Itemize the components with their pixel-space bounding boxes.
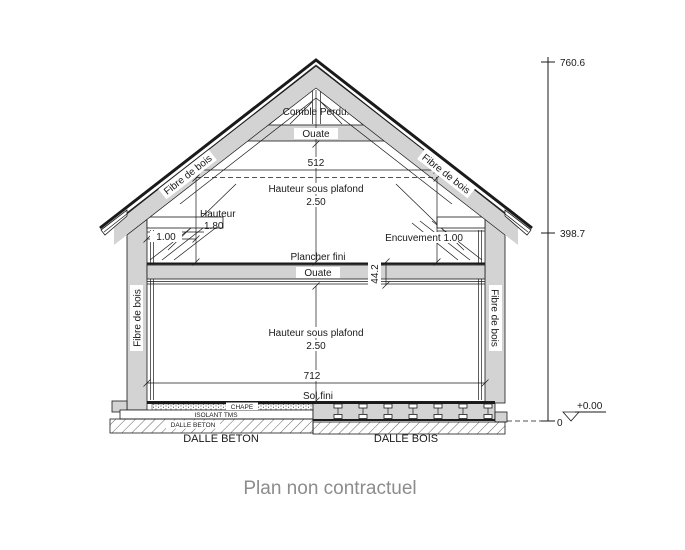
dalle-beton-title: DALLE BETON xyxy=(183,433,259,445)
right-knee-cap xyxy=(437,217,485,228)
elevation-zero-label: 0 xyxy=(557,418,563,429)
ouate-roof-label: Ouate xyxy=(302,129,330,140)
dim-442-label: 44.2 xyxy=(370,264,381,284)
dim-712-label: 712 xyxy=(304,371,321,382)
datum-triangle-icon xyxy=(563,412,579,421)
roof-insulation-right xyxy=(316,66,518,245)
ouate-floor-label: Ouate xyxy=(304,268,332,279)
dalle-beton-layer-label: DALLE BETON xyxy=(171,422,216,429)
knee-height-label: Hauteur xyxy=(200,209,236,220)
ground-slab xyxy=(110,403,507,435)
elevation-marks xyxy=(507,57,606,421)
section-svg: Comble Perdu. Ouate 512 Hauteur sous pla… xyxy=(0,0,685,550)
ground-ceiling-label: Hauteur sous plafond xyxy=(268,328,363,339)
upper-ceiling-value: 2.50 xyxy=(306,197,326,208)
ground-ceiling-value: 2.50 xyxy=(306,341,326,352)
sol-fini-label: Sol fini xyxy=(303,391,333,402)
dim-512-label: 512 xyxy=(308,158,325,169)
knee-height-value: 1.80 xyxy=(204,221,224,232)
chape-label: CHAPE xyxy=(231,404,254,411)
right-footing-step xyxy=(495,412,507,422)
dim-100-label: 1.00 xyxy=(156,232,176,243)
architectural-section-drawing: Comble Perdu. Ouate 512 Hauteur sous pla… xyxy=(0,0,685,550)
elevation-datum-label: +0.00 xyxy=(577,401,603,412)
comble-perdu-label: Comble Perdu. xyxy=(283,107,350,118)
upper-ceiling-label: Hauteur sous plafond xyxy=(268,184,363,195)
isolant-label: ISOLANT TMS xyxy=(194,412,238,419)
fibre-wall-right-label: Fibre de bois xyxy=(489,285,503,351)
dalle-bois-title: DALLE BOIS xyxy=(374,433,438,445)
svg-text:Fibre de bois: Fibre de bois xyxy=(489,289,500,347)
encuvement-label: Encuvement 1.00 xyxy=(385,233,463,244)
caption: Plan non contractuel xyxy=(243,478,416,499)
svg-text:Fibre de bois: Fibre de bois xyxy=(133,289,144,347)
plancher-fini-label: Plancher fini xyxy=(290,252,345,263)
fibre-wall-left-label: Fibre de bois xyxy=(130,285,144,351)
elevation-ridge-label: 760.6 xyxy=(560,58,585,69)
elevation-eave-label: 398.7 xyxy=(560,229,585,240)
